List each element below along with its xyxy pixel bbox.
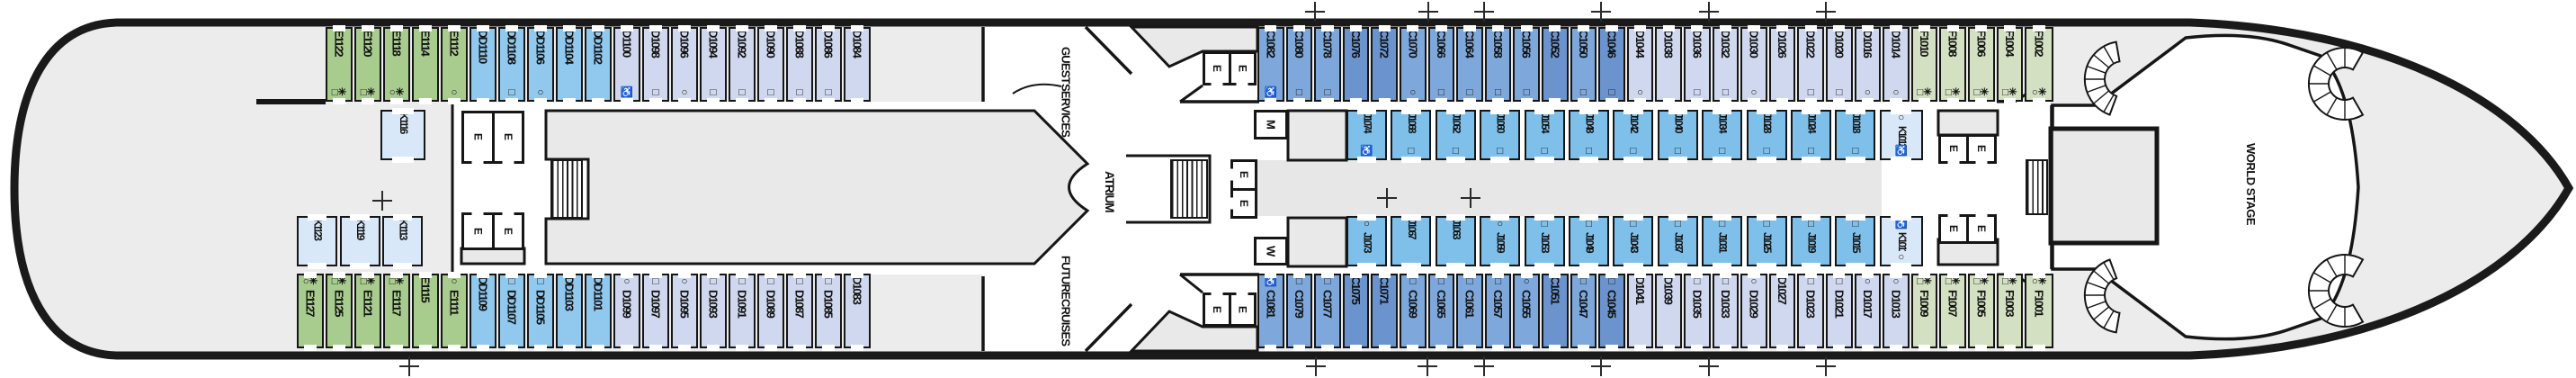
- cabin-D1022[interactable]: D1022□: [1797, 27, 1824, 102]
- cabin-number-label: D1100: [621, 29, 634, 86]
- cabin-D1030[interactable]: D1030○: [1740, 27, 1767, 102]
- cabin-E1115[interactable]: E1115: [412, 274, 439, 348]
- cabin-F1003[interactable]: □✳F1003: [1997, 274, 2024, 348]
- cabin-number-label: C1079: [1292, 289, 1306, 346]
- cabin-number-label: J1068: [1406, 112, 1417, 145]
- cabin-number-label: DD1104: [563, 29, 577, 100]
- plus-mark-icon: [1591, 356, 1611, 376]
- cabin-amenity-icons: □: [759, 86, 783, 100]
- future-cruises-label: FUTURE CRUISES: [1058, 266, 1072, 335]
- cabin-number-label: D1099: [621, 289, 634, 346]
- cabin-C1047[interactable]: □C1047: [1570, 274, 1597, 348]
- cabin-C1046[interactable]: C1046□: [1598, 27, 1625, 102]
- cabin-DD1110[interactable]: DD1110: [470, 27, 496, 102]
- cabin-number-label: DD1106: [534, 29, 548, 86]
- cabin-D1023[interactable]: □D1023: [1797, 274, 1824, 348]
- cabin-number-label: E1127: [304, 289, 318, 346]
- cabin-D1093[interactable]: □D1093: [700, 274, 727, 348]
- cabin-number-label: E1114: [419, 29, 433, 100]
- cabin-DD1107[interactable]: □DD1107: [498, 274, 525, 348]
- cabin-D1086[interactable]: D1086□: [815, 27, 842, 102]
- cabin-E1114[interactable]: E1114: [412, 27, 439, 102]
- cabin-number-label: D1084: [851, 29, 864, 100]
- cabin-amenity-icons: □: [759, 275, 783, 289]
- cabin-C1072[interactable]: C1072: [1371, 27, 1398, 102]
- cabin-number-label: C1057: [1491, 289, 1505, 346]
- cabin-D1016[interactable]: D1016○: [1855, 27, 1882, 102]
- elevator-icon: E: [464, 113, 492, 161]
- stairs-icon: [2026, 159, 2048, 215]
- cabin-number-label: DD1103: [563, 275, 577, 346]
- elevator-letter: E: [1211, 306, 1223, 313]
- cabin-amenity-icons: ○: [673, 275, 696, 289]
- cabin-D1084[interactable]: D1084: [844, 27, 871, 102]
- cabin-J1031[interactable]: □J1031: [1702, 216, 1742, 266]
- cabin-number-label: D1035: [1690, 289, 1704, 346]
- cabin-DD1101[interactable]: DD1101: [585, 274, 612, 348]
- cabin-amenity-icons: □✳: [1941, 275, 1964, 289]
- cabin-D1100[interactable]: D1100♿: [613, 27, 640, 102]
- world-stage-text: WORLD STAGE: [2244, 143, 2258, 225]
- cabin-J1074[interactable]: J1074♿: [1346, 110, 1387, 160]
- elevator-letter: E: [1236, 306, 1248, 313]
- cabin-amenity-icons: □✳: [1999, 275, 2022, 289]
- cabin-J1018[interactable]: J1018□: [1835, 110, 1875, 160]
- cabin-number-label: D1014: [1889, 29, 1902, 86]
- elevator-icon: E: [1229, 54, 1255, 83]
- cabin-J1042[interactable]: J1042□: [1613, 110, 1653, 160]
- elevator-letter: E: [1947, 145, 1960, 152]
- cabin-amenity-icons: ○: [1401, 86, 1425, 100]
- elevator-bank: EE: [461, 212, 524, 250]
- cabin-number-label: F1010: [1918, 29, 1931, 86]
- cabin-number-label: F1002: [2033, 29, 2046, 86]
- elevator-bank: EE: [1938, 134, 1997, 164]
- cabin-number-label: D1088: [793, 29, 807, 86]
- cabin-amenity-icons: □: [1437, 145, 1474, 158]
- cabin-amenity-icons: □: [1686, 275, 1709, 289]
- cabin-number-label: J1054: [1539, 112, 1550, 145]
- cabin-amenity-icons: □: [1487, 275, 1510, 289]
- cabin-number-label: E1117: [390, 289, 404, 346]
- mens-restroom: M: [1254, 110, 1288, 139]
- cabin-number-label: J1073: [1362, 231, 1373, 265]
- cabin-number-label: D1032: [1719, 29, 1732, 86]
- cabin-F1009[interactable]: □✳F1009: [1911, 274, 1938, 348]
- cabin-F1005[interactable]: □✳F1005: [1968, 274, 1995, 348]
- cabin-C1061[interactable]: □C1061: [1456, 274, 1483, 348]
- cabin-number-label: D1038: [1662, 29, 1676, 100]
- cabin-amenity-icons: □: [1837, 218, 1874, 231]
- cabin-number-label: J1060: [1495, 112, 1506, 145]
- elevator-icon: E: [1966, 137, 1994, 161]
- cabin-C1051[interactable]: C1051: [1542, 274, 1569, 348]
- cabin-C1058[interactable]: C1058□: [1485, 27, 1512, 102]
- cabin-D1091[interactable]: □D1091: [729, 274, 756, 348]
- cabin-E1122[interactable]: E1122□✳: [326, 27, 353, 102]
- cabin-amenity-icons: □: [702, 86, 725, 100]
- cabin-C1076[interactable]: C1076: [1343, 27, 1370, 102]
- guest-services-line1: GUEST: [1058, 47, 1072, 84]
- cabin-number-label: J1015: [1850, 231, 1861, 265]
- cabin-C1057[interactable]: □C1057: [1485, 274, 1512, 348]
- cabin-D1089[interactable]: □D1089: [757, 274, 784, 348]
- cabin-amenity-icons: □: [644, 86, 667, 100]
- cabin-F1008[interactable]: F1008□✳: [1939, 27, 1966, 102]
- cabin-E1112[interactable]: E1112○: [441, 27, 468, 102]
- cabin-number-label: D1039: [1662, 275, 1676, 346]
- cabin-J1034[interactable]: J1034□: [1702, 110, 1742, 160]
- cabin-D1021[interactable]: □D1021: [1826, 274, 1853, 348]
- cabin-F1006[interactable]: F1006□✳: [1968, 27, 1995, 102]
- cabin-D1098[interactable]: D1098□: [642, 27, 669, 102]
- cabin-J1068[interactable]: J1068□: [1391, 110, 1431, 160]
- cabin-C1079[interactable]: □C1079: [1286, 274, 1313, 348]
- cabin-amenity-icons: ○: [1884, 275, 1908, 289]
- cabin-C1077[interactable]: □C1077: [1314, 274, 1341, 348]
- cabin-amenity-icons: ○: [1481, 218, 1518, 231]
- cabin-number-label: C1064: [1462, 29, 1476, 86]
- cabin-amenity-icons: □: [1316, 86, 1339, 100]
- elevator-letter: E: [1211, 65, 1223, 72]
- cabin-C1050[interactable]: C1050□: [1570, 27, 1597, 102]
- cabin-C1071[interactable]: C1071: [1371, 274, 1398, 348]
- cabin-number-label: D1086: [822, 29, 836, 86]
- cabin-number-label: C1056: [1520, 29, 1534, 86]
- womens-restroom-label: W: [1265, 246, 1278, 256]
- plus-mark-icon: [1306, 356, 1326, 376]
- plus-mark-icon: [1377, 188, 1397, 208]
- cabin-amenity-icons: ♿: [1348, 145, 1385, 158]
- cabin-amenity-icons: □: [702, 275, 725, 289]
- cabin-amenity-icons: □: [1481, 145, 1518, 158]
- cabin-amenity-icons: □: [1793, 218, 1829, 231]
- plus-mark-icon: [372, 191, 392, 211]
- cabin-amenity-icons: ○✳: [2026, 275, 2052, 289]
- cabin-C1080[interactable]: C1080□: [1286, 27, 1313, 102]
- cabin-D1095[interactable]: ○D1095: [671, 274, 698, 348]
- cabin-number-label: E1118: [390, 29, 404, 86]
- cabin-number-label: J1042: [1628, 112, 1639, 145]
- cabin-amenity-icons: □: [1614, 145, 1651, 158]
- cabin-K1123[interactable]: K1123: [297, 216, 337, 266]
- cabin-number-label: C1080: [1292, 29, 1306, 86]
- cabin-C1055[interactable]: ○C1055: [1513, 274, 1540, 348]
- plus-mark-icon: [1474, 2, 1494, 22]
- cabin-amenity-icons: □: [500, 275, 523, 289]
- cabin-number-label: D1094: [707, 29, 720, 86]
- cabin-J1054[interactable]: J1054□: [1525, 110, 1565, 160]
- cabin-amenity-icons: ○: [673, 86, 696, 100]
- elevator-icon: E: [1233, 162, 1255, 188]
- cabin-D1088[interactable]: D1088□: [786, 27, 813, 102]
- cabin-amenity-icons: □: [1799, 275, 1822, 289]
- cabin-C1066[interactable]: C1066□: [1428, 27, 1455, 102]
- cabin-D1014[interactable]: D1014○: [1883, 27, 1910, 102]
- cabin-number-label: D1090: [765, 29, 778, 86]
- plus-mark-icon: [1305, 2, 1325, 22]
- cabin-DD1102[interactable]: DD1102: [585, 27, 612, 102]
- cabin-D1090[interactable]: D1090□: [757, 27, 784, 102]
- cabin-E1125[interactable]: □✳E1125: [326, 274, 353, 348]
- cabin-DD1106[interactable]: DD1106○: [527, 27, 554, 102]
- cabin-amenity-icons: □: [1828, 275, 1851, 289]
- cabin-amenity-icons: □✳: [356, 275, 380, 289]
- cabin-number-label: J1018: [1850, 112, 1861, 145]
- cabin-amenity-icons: □✳: [327, 275, 351, 289]
- cabin-number-label: D1083: [851, 275, 864, 346]
- cabin-number-label: K1116: [398, 112, 408, 158]
- cabin-amenity-icons: ♿: [1259, 275, 1283, 289]
- cabin-amenity-icons: □: [1714, 275, 1738, 289]
- cabin-number-label: J1067: [1406, 218, 1417, 265]
- cabin-K1011[interactable]: ♿K1011○: [1880, 216, 1923, 266]
- cabin-number-label: E1125: [333, 289, 346, 346]
- cabin-D1020[interactable]: D1020□: [1826, 27, 1853, 102]
- cabin-number-label: D1097: [649, 289, 663, 346]
- cabin-amenity-icons: □: [1392, 145, 1429, 158]
- plus-mark-icon: [1816, 356, 1836, 376]
- cabin-number-label: D1021: [1832, 289, 1846, 346]
- cabin-number-label: F1009: [1918, 289, 1931, 346]
- cabin-D1029[interactable]: ○D1029: [1740, 274, 1767, 348]
- elevator-bank: EE: [1203, 292, 1257, 327]
- elevator-bank: EE: [1230, 159, 1257, 219]
- cabin-F1007[interactable]: □✳F1007: [1939, 274, 1966, 348]
- cabin-number-label: DD1101: [592, 275, 605, 346]
- cabin-D1097[interactable]: □D1097: [642, 274, 669, 348]
- cabin-J1060[interactable]: J1060□: [1480, 110, 1520, 160]
- cabin-number-label: E1120: [362, 29, 375, 86]
- cabin-amenity-icons: □: [500, 86, 523, 100]
- cabin-amenity-icons: □: [817, 86, 840, 100]
- cabin-J1024[interactable]: J1024□: [1791, 110, 1831, 160]
- guest-services-label: GUEST SERVICES: [1058, 47, 1072, 137]
- cabin-amenity-icons: □✳: [327, 86, 351, 100]
- cabin-D1013[interactable]: ○D1013: [1883, 274, 1910, 348]
- cabin-number-label: C1052: [1548, 29, 1561, 100]
- elevator-bank: EE: [461, 111, 524, 164]
- cabin-amenity-icons: □: [788, 275, 811, 289]
- cabin-D1044[interactable]: D1044○: [1627, 27, 1654, 102]
- cabin-D1035[interactable]: □D1035: [1684, 274, 1711, 348]
- plus-mark-icon: [1699, 2, 1719, 22]
- elevator-letter: E: [1238, 171, 1250, 178]
- cabin-D1038[interactable]: D1038: [1655, 27, 1682, 102]
- cabin-amenity-icons: □: [1430, 86, 1453, 100]
- cabin-E1121[interactable]: □✳E1121: [354, 274, 381, 348]
- cabin-number-label: D1030: [1747, 29, 1760, 86]
- cabin-amenity-icons: □✳: [1913, 275, 1936, 289]
- cabin-amenity-icons: □: [644, 275, 667, 289]
- cabin-J1048[interactable]: J1048□: [1569, 110, 1609, 160]
- cabin-number-label: E1115: [419, 275, 433, 346]
- cabin-amenity-icons: ○: [1629, 86, 1652, 100]
- cabin-amenity-icons: □: [1704, 145, 1740, 158]
- cabin-number-label: K1011: [1896, 231, 1907, 251]
- cabin-amenity-icons: ○: [1856, 275, 1880, 289]
- cabin-J1043[interactable]: □J1043: [1613, 216, 1653, 266]
- cabin-amenity-icons: □✳: [1913, 86, 1936, 100]
- elevator-icon: E: [1205, 295, 1229, 324]
- cabin-J1037[interactable]: □J1037: [1658, 216, 1698, 266]
- cabin-F1004[interactable]: F1004□✳: [1997, 27, 2024, 102]
- cabin-number-label: D1089: [765, 289, 778, 346]
- elevator-letter: E: [471, 228, 484, 235]
- cabin-C1075[interactable]: C1075: [1343, 274, 1370, 348]
- cabin-number-label: C1066: [1435, 29, 1448, 86]
- guest-services-line2: SERVICES: [1058, 84, 1072, 137]
- cabin-C1045[interactable]: □C1045: [1598, 274, 1625, 348]
- cabin-D1032[interactable]: D1032□: [1713, 27, 1740, 102]
- cabin-D1092[interactable]: D1092□: [729, 27, 756, 102]
- cabin-DD1103[interactable]: DD1103: [556, 274, 583, 348]
- elevator-bank: EE: [1203, 51, 1257, 85]
- cabin-D1083[interactable]: D1083: [844, 274, 871, 348]
- cabin-J1073[interactable]: ○J1073: [1346, 216, 1387, 266]
- cabin-amenity-icons: □: [1526, 145, 1563, 158]
- cabin-number-label: D1041: [1633, 275, 1647, 346]
- cabin-D1039[interactable]: D1039: [1655, 274, 1682, 348]
- cabin-number-label: D1044: [1633, 29, 1647, 86]
- cabin-J1040[interactable]: J1040□: [1658, 110, 1698, 160]
- cabin-number-label: J1019: [1806, 231, 1817, 265]
- cabin-K1119[interactable]: K1119: [340, 216, 380, 266]
- cabin-K1012[interactable]: ○K1012♿: [1880, 110, 1923, 160]
- cabin-J1059[interactable]: ○J1059: [1480, 216, 1520, 266]
- cabin-amenity-icons: □: [1614, 218, 1651, 231]
- cabin-number-label: D1092: [736, 29, 749, 86]
- world-stage-label: WORLD STAGE: [2244, 135, 2258, 234]
- cabin-number-label: C1077: [1320, 289, 1334, 346]
- stairs-icon: [1170, 159, 1208, 219]
- cabin-C1070[interactable]: C1070○: [1400, 27, 1427, 102]
- cabin-K1113[interactable]: K1113: [382, 216, 423, 266]
- elevator-icon: E: [1233, 188, 1255, 217]
- elevator-icon: E: [1205, 54, 1229, 83]
- cabin-D1096[interactable]: D1096○: [671, 27, 698, 102]
- cabin-J1015[interactable]: □J1015: [1835, 216, 1875, 266]
- cabin-number-label: C1071: [1378, 275, 1391, 346]
- cabin-E1111[interactable]: ○E1111: [441, 274, 468, 348]
- cabin-C1069[interactable]: □C1069: [1400, 274, 1427, 348]
- cabin-number-label: D1093: [707, 289, 720, 346]
- cabin-C1064[interactable]: C1064□: [1456, 27, 1483, 102]
- cabin-D1085[interactable]: □D1085: [815, 274, 842, 348]
- cabin-DD1109[interactable]: DD1109: [470, 274, 496, 348]
- cabin-number-label: C1055: [1520, 289, 1534, 346]
- cabin-number-label: D1026: [1775, 29, 1789, 100]
- cabin-J1063[interactable]: J1063: [1436, 216, 1476, 266]
- cabin-J1062[interactable]: J1062□: [1436, 110, 1476, 160]
- cabin-number-label: C1069: [1406, 289, 1419, 346]
- cabin-D1036[interactable]: D1036□: [1684, 27, 1711, 102]
- cabin-J1028[interactable]: J1028□: [1747, 110, 1787, 160]
- elevator-letter: E: [1236, 65, 1248, 72]
- cabin-E1117[interactable]: □✳E1117: [383, 274, 410, 348]
- cabin-number-label: F1005: [1974, 289, 1988, 346]
- elevator-icon: E: [1941, 137, 1966, 161]
- cabin-D1041[interactable]: D1041: [1627, 274, 1654, 348]
- cabin-number-label: D1027: [1775, 275, 1789, 346]
- cabin-E1120[interactable]: E1120□✳: [354, 27, 381, 102]
- cabin-D1033[interactable]: □D1033: [1713, 274, 1740, 348]
- cabin-number-label: C1051: [1548, 275, 1561, 346]
- cabin-amenity-icons: □: [1572, 86, 1596, 100]
- cabin-J1067[interactable]: J1067: [1391, 216, 1431, 266]
- cabin-amenity-icons: □: [1704, 218, 1740, 231]
- cabin-D1087[interactable]: □D1087: [786, 274, 813, 348]
- cabin-D1094[interactable]: D1094□: [700, 27, 727, 102]
- cabin-number-label: D1033: [1719, 289, 1732, 346]
- cabin-number-label: C1065: [1435, 289, 1448, 346]
- cabin-C1056[interactable]: C1056□: [1513, 27, 1540, 102]
- cabin-number-label: D1029: [1747, 289, 1760, 346]
- cabin-D1017[interactable]: ○D1017: [1855, 274, 1882, 348]
- cabin-amenity-icons: □✳: [1941, 86, 1964, 100]
- plus-mark-icon: [1474, 356, 1494, 376]
- elevator-letter: E: [502, 133, 514, 140]
- cabin-number-label: C1050: [1577, 29, 1590, 86]
- elevator-letter: E: [1975, 145, 1988, 152]
- cabin-J1049[interactable]: □J1049: [1569, 216, 1609, 266]
- cabin-number-label: J1034: [1717, 112, 1728, 145]
- cabin-amenity-icons: □: [1686, 86, 1709, 100]
- cabin-K1116[interactable]: K1116: [380, 110, 425, 160]
- cabin-J1019[interactable]: □J1019: [1791, 216, 1831, 266]
- plus-mark-icon: [1591, 2, 1611, 22]
- cabin-DD1108[interactable]: DD1108□: [498, 27, 525, 102]
- cabin-F1010[interactable]: F1010□✳: [1911, 27, 1938, 102]
- ship-deck-plan: GUEST SERVICES FUTURE CRUISES ATRIUM WOR…: [0, 0, 2576, 378]
- cabin-D1027[interactable]: D1027: [1769, 274, 1796, 348]
- cabin-DD1105[interactable]: □DD1105: [527, 274, 554, 348]
- cabin-number-label: J1048: [1584, 112, 1595, 145]
- cabin-amenity-icons: ♿: [1882, 218, 1921, 231]
- cabin-number-label: C1061: [1462, 289, 1476, 346]
- cabin-amenity-icons: □: [788, 86, 811, 100]
- cabin-C1052[interactable]: C1052: [1542, 27, 1569, 102]
- cabin-E1127[interactable]: ○✳E1127: [297, 274, 324, 348]
- elevator-letter: E: [471, 133, 484, 140]
- cabin-amenity-icons: ♿: [1882, 145, 1921, 158]
- cabin-number-label: J1059: [1495, 231, 1506, 265]
- cabin-number-label: D1091: [736, 289, 749, 346]
- cabin-number-label: F1006: [1974, 29, 1988, 86]
- cabin-number-label: C1081: [1264, 289, 1277, 346]
- cabin-DD1104[interactable]: DD1104: [556, 27, 583, 102]
- cabin-number-label: C1047: [1577, 289, 1590, 346]
- cabin-C1065[interactable]: □C1065: [1428, 274, 1455, 348]
- cabin-F1001[interactable]: ○✳F1001: [2025, 274, 2053, 348]
- cabin-number-label: F1008: [1946, 29, 1960, 86]
- cabin-amenity-icons: ♿: [1259, 86, 1283, 100]
- cabin-amenity-icons: □: [1570, 145, 1607, 158]
- cabin-amenity-icons: ○: [529, 86, 552, 100]
- cabin-J1025[interactable]: □J1025: [1747, 216, 1787, 266]
- cabin-D1099[interactable]: ○D1099: [613, 274, 640, 348]
- cabin-D1026[interactable]: D1026: [1769, 27, 1796, 102]
- cabin-J1053[interactable]: □J1053: [1525, 216, 1565, 266]
- cabin-F1002[interactable]: F1002○✳: [2025, 27, 2053, 102]
- cabin-C1081[interactable]: ♿C1081: [1257, 274, 1284, 348]
- cabin-amenity-icons: ○: [1742, 86, 1766, 100]
- cabin-amenity-icons: □: [730, 86, 754, 100]
- cabin-C1082[interactable]: C1082♿: [1257, 27, 1284, 102]
- cabin-C1078[interactable]: C1078□: [1314, 27, 1341, 102]
- cabin-E1118[interactable]: E1118○✳: [383, 27, 410, 102]
- atrium-text: ATRIUM: [1103, 171, 1116, 212]
